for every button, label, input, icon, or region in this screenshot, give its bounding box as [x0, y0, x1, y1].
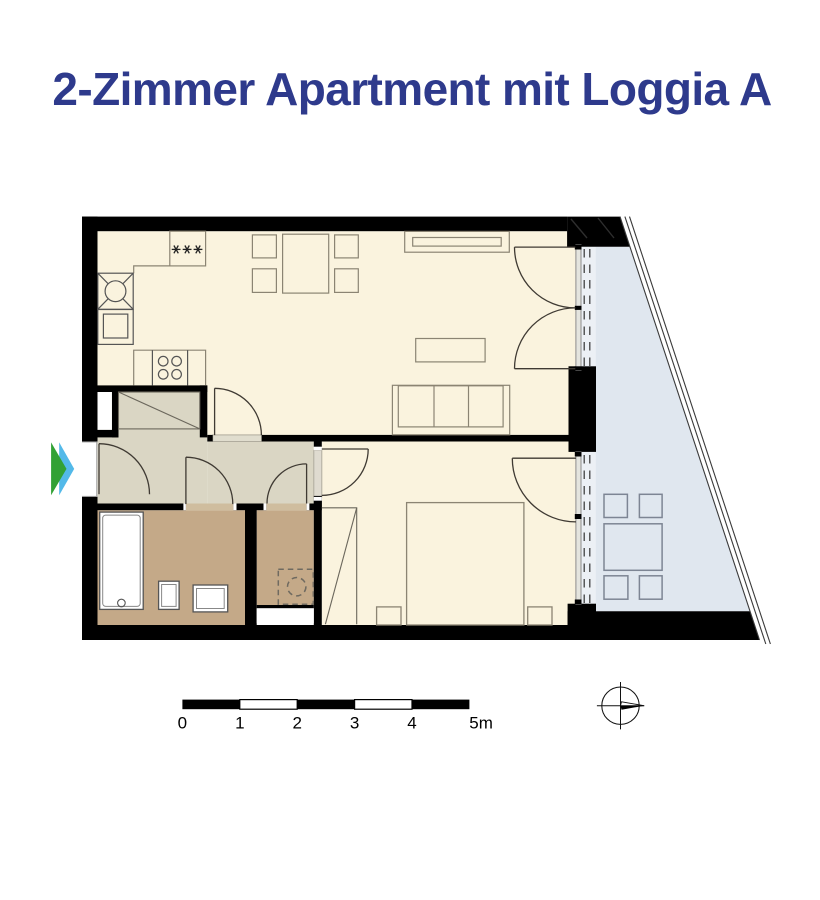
svg-text:2: 2: [292, 714, 301, 733]
svg-text:5m: 5m: [469, 714, 493, 733]
svg-text:1: 1: [235, 714, 244, 733]
svg-text:3: 3: [350, 714, 359, 733]
svg-text:4: 4: [407, 714, 416, 733]
svg-text:2-Zimmer Apartment mit Loggia: 2-Zimmer Apartment mit Loggia A: [52, 63, 771, 115]
svg-text:0: 0: [178, 714, 187, 733]
